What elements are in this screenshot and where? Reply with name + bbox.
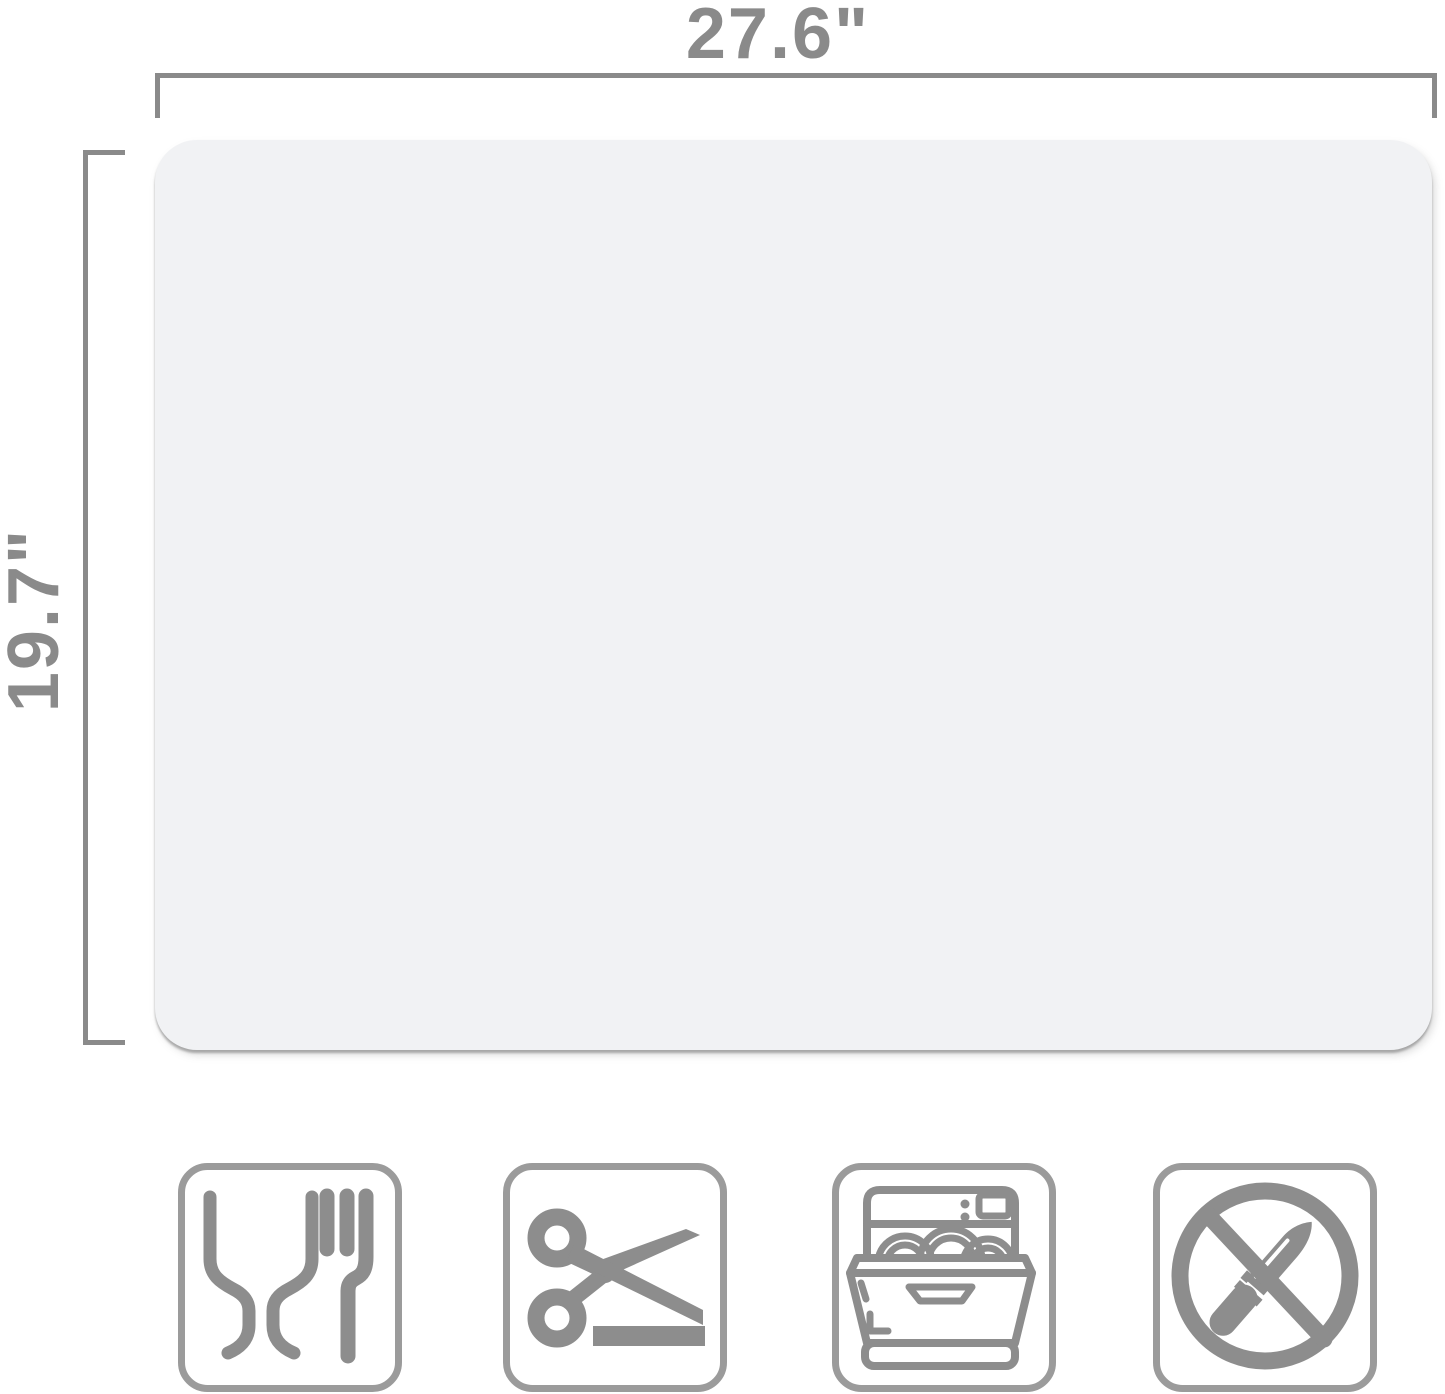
no-knife-glyph xyxy=(1153,1163,1377,1392)
product-dimension-diagram: 27.6" 19.7" xyxy=(0,0,1445,1394)
width-dimension-line xyxy=(155,73,1437,78)
dimension-tick xyxy=(155,73,160,118)
scissors-glyph xyxy=(503,1163,727,1392)
placemat-product xyxy=(155,140,1432,1050)
dimension-tick xyxy=(83,150,125,155)
dimension-tick xyxy=(83,1040,125,1045)
food-safe-icon xyxy=(178,1163,402,1392)
height-dimension-label: 19.7" xyxy=(0,528,70,712)
dimension-tick xyxy=(1432,73,1437,118)
scissors-cuttable-icon xyxy=(503,1163,727,1392)
dishwasher-safe-icon xyxy=(832,1163,1056,1392)
no-knife-icon xyxy=(1153,1163,1377,1392)
height-dimension-line xyxy=(83,150,88,1045)
width-dimension-label: 27.6" xyxy=(137,0,1419,70)
glass-fork-glyph xyxy=(178,1163,402,1392)
dishwasher-glyph xyxy=(832,1163,1056,1392)
